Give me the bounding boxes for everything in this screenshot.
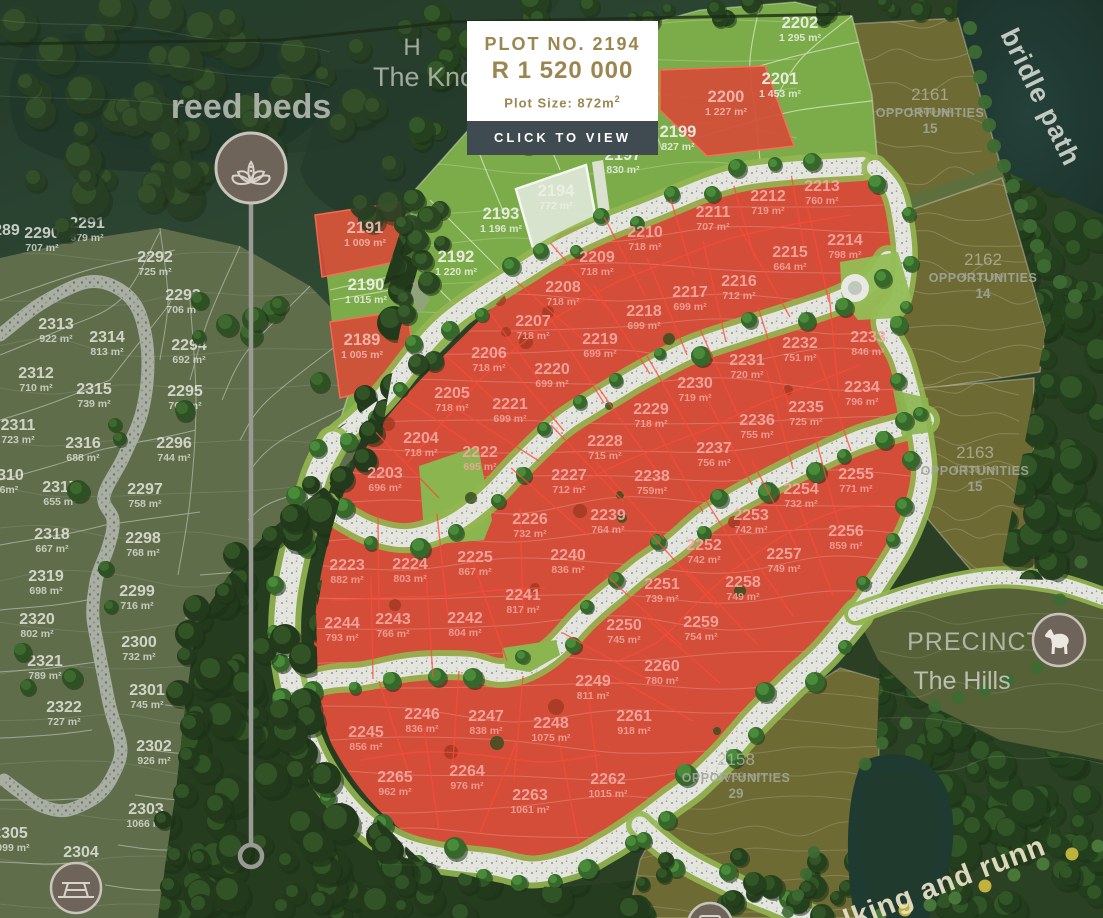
svg-text:2249: 2249 <box>575 673 611 690</box>
svg-text:718 m²: 718 m² <box>516 330 550 342</box>
svg-text:2206: 2206 <box>471 345 507 362</box>
svg-text:918 m²: 918 m² <box>617 725 651 737</box>
svg-text:2218: 2218 <box>626 303 662 320</box>
svg-text:749 m²: 749 m² <box>726 591 760 603</box>
svg-text:2224: 2224 <box>392 556 428 573</box>
svg-text:2210: 2210 <box>627 224 663 241</box>
svg-text:15: 15 <box>967 479 983 494</box>
svg-text:768 m²: 768 m² <box>126 547 160 559</box>
svg-text:2251: 2251 <box>644 576 680 593</box>
svg-text:804 m²: 804 m² <box>448 627 482 639</box>
svg-text:1099 m²: 1099 m² <box>0 842 30 854</box>
svg-text:2301: 2301 <box>129 682 165 699</box>
svg-text:2238: 2238 <box>634 468 670 485</box>
svg-text:2254: 2254 <box>783 481 819 498</box>
svg-text:2208: 2208 <box>545 279 581 296</box>
svg-text:2227: 2227 <box>551 467 587 484</box>
svg-text:751 m²: 751 m² <box>783 352 817 364</box>
svg-text:1 009 m²: 1 009 m² <box>344 237 387 249</box>
svg-text:725 m²: 725 m² <box>138 266 172 278</box>
svg-text:732 m²: 732 m² <box>784 498 818 510</box>
svg-text:926 m²: 926 m² <box>137 755 171 767</box>
svg-text:755 m²: 755 m² <box>740 429 774 441</box>
svg-text:742 m²: 742 m² <box>687 554 721 566</box>
svg-text:2257: 2257 <box>766 546 802 563</box>
svg-text:2242: 2242 <box>447 610 483 627</box>
svg-text:699 m²: 699 m² <box>583 348 617 360</box>
svg-text:reed beds: reed beds <box>171 88 332 126</box>
svg-text:2226: 2226 <box>512 511 548 528</box>
svg-text:2252: 2252 <box>686 537 722 554</box>
svg-text:1 015 m²: 1 015 m² <box>345 294 388 306</box>
svg-text:756 m²: 756 m² <box>697 457 731 469</box>
svg-text:2231: 2231 <box>729 352 765 369</box>
svg-text:922 m²: 922 m² <box>39 333 73 345</box>
svg-text:2312: 2312 <box>18 365 54 382</box>
svg-text:2158: 2158 <box>717 750 755 769</box>
svg-text:664 m²: 664 m² <box>773 261 807 273</box>
svg-text:2205: 2205 <box>434 385 470 402</box>
svg-text:2162: 2162 <box>964 250 1002 269</box>
svg-text:745 m²: 745 m² <box>130 699 164 711</box>
svg-text:796 m²: 796 m² <box>845 396 879 408</box>
svg-text:712 m²: 712 m² <box>552 484 586 496</box>
svg-text:789 m²: 789 m² <box>28 670 62 682</box>
svg-text:2295: 2295 <box>167 383 203 400</box>
svg-text:817 m²: 817 m² <box>506 604 540 616</box>
svg-text:2201: 2201 <box>762 70 799 88</box>
svg-text:766 m²: 766 m² <box>376 628 410 640</box>
svg-text:2246: 2246 <box>404 706 440 723</box>
svg-text:2194: 2194 <box>538 182 576 200</box>
svg-text:836 m²: 836 m² <box>551 564 585 576</box>
svg-text:2258: 2258 <box>725 574 761 591</box>
svg-text:2222: 2222 <box>462 444 498 461</box>
svg-text:2264: 2264 <box>449 763 485 780</box>
svg-text:2207: 2207 <box>515 313 551 330</box>
svg-text:719 m²: 719 m² <box>678 392 712 404</box>
svg-text:2250: 2250 <box>606 617 642 634</box>
svg-text:PRECINCT: PRECINCT <box>907 628 1043 656</box>
svg-text:2161: 2161 <box>911 85 949 104</box>
svg-text:718 m²: 718 m² <box>435 402 469 414</box>
svg-text:2223: 2223 <box>329 557 365 574</box>
svg-text:OPPORTUNITIES: OPPORTUNITIES <box>876 106 985 120</box>
svg-text:803 m²: 803 m² <box>393 573 427 585</box>
svg-text:696 m²: 696 m² <box>368 482 402 494</box>
svg-text:745 m²: 745 m² <box>607 634 641 646</box>
svg-text:718 m²: 718 m² <box>628 241 662 253</box>
svg-text:2233: 2233 <box>850 329 886 346</box>
svg-text:699 m²: 699 m² <box>535 378 569 390</box>
svg-text:2228: 2228 <box>587 433 623 450</box>
svg-text:718 m²: 718 m² <box>472 362 506 374</box>
svg-text:2191: 2191 <box>347 219 384 237</box>
svg-text:692 m²: 692 m² <box>172 354 206 366</box>
svg-text:2189: 2189 <box>344 331 381 349</box>
svg-text:793 m²: 793 m² <box>325 632 359 644</box>
svg-text:699 m²: 699 m² <box>493 413 527 425</box>
svg-text:707 m²: 707 m² <box>25 242 59 254</box>
svg-text:723 m²: 723 m² <box>1 434 35 446</box>
svg-text:2244: 2244 <box>324 615 360 632</box>
svg-text:2316: 2316 <box>65 435 101 452</box>
svg-text:699 m²: 699 m² <box>627 320 661 332</box>
svg-text:802 m²: 802 m² <box>20 628 54 640</box>
svg-text:2260: 2260 <box>644 658 680 675</box>
svg-text:1 227 m²: 1 227 m² <box>705 106 748 118</box>
svg-text:2235: 2235 <box>788 399 824 416</box>
svg-text:695 m²: 695 m² <box>463 461 497 473</box>
svg-text:2221: 2221 <box>492 396 528 413</box>
svg-text:2292: 2292 <box>137 249 173 266</box>
svg-text:1 295 m²: 1 295 m² <box>779 32 822 44</box>
svg-text:2256: 2256 <box>828 523 864 540</box>
svg-text:2319: 2319 <box>28 568 64 585</box>
svg-text:2259: 2259 <box>683 614 719 631</box>
svg-text:2220: 2220 <box>534 361 570 378</box>
svg-text:772 m²: 772 m² <box>539 200 573 212</box>
svg-text:2299: 2299 <box>119 583 155 600</box>
svg-text:2245: 2245 <box>348 724 384 741</box>
svg-text:2247: 2247 <box>468 708 504 725</box>
svg-text:OPPORTUNITIES: OPPORTUNITIES <box>921 464 1030 478</box>
svg-text:732 m²: 732 m² <box>513 528 547 540</box>
svg-text:2320: 2320 <box>19 611 55 628</box>
svg-text:739 m²: 739 m² <box>77 398 111 410</box>
svg-text:712 m²: 712 m² <box>722 290 756 302</box>
svg-text:2261: 2261 <box>616 708 652 725</box>
svg-text:2190: 2190 <box>348 276 385 294</box>
svg-text:2255: 2255 <box>838 466 874 483</box>
svg-text:2192: 2192 <box>438 248 475 266</box>
svg-text:758 m²: 758 m² <box>128 498 162 510</box>
svg-text:OPPORTUNITIES: OPPORTUNITIES <box>929 271 1038 285</box>
svg-text:2315: 2315 <box>76 381 112 398</box>
svg-text:2322: 2322 <box>46 699 82 716</box>
svg-text:2215: 2215 <box>772 244 808 261</box>
svg-text:2310: 2310 <box>0 467 24 484</box>
svg-text:667 m²: 667 m² <box>35 543 69 555</box>
svg-text:2214: 2214 <box>827 232 863 249</box>
svg-text:2265: 2265 <box>377 769 413 786</box>
svg-text:2199: 2199 <box>660 123 697 141</box>
svg-text:760 m²: 760 m² <box>805 195 839 207</box>
svg-text:2243: 2243 <box>375 611 411 628</box>
svg-text:732 m²: 732 m² <box>122 651 156 663</box>
svg-text:1 196 m²: 1 196 m² <box>480 223 523 235</box>
svg-text:2253: 2253 <box>733 507 769 524</box>
svg-text:727 m²: 727 m² <box>47 716 81 728</box>
svg-text:2230: 2230 <box>677 375 713 392</box>
svg-text:1015 m²: 1015 m² <box>588 788 628 800</box>
svg-text:2305: 2305 <box>0 825 28 842</box>
svg-text:2219: 2219 <box>582 331 618 348</box>
svg-text:811 m²: 811 m² <box>577 690 610 702</box>
svg-text:716 m²: 716 m² <box>120 600 154 612</box>
svg-text:718 m²: 718 m² <box>580 266 614 278</box>
svg-text:2203: 2203 <box>367 465 403 482</box>
svg-text:The Hills: The Hills <box>913 667 1010 695</box>
svg-text:2236: 2236 <box>739 412 775 429</box>
svg-text:2302: 2302 <box>136 738 172 755</box>
svg-text:2163: 2163 <box>956 443 994 462</box>
svg-text:2211: 2211 <box>696 204 731 221</box>
svg-text:718 m²: 718 m² <box>634 418 668 430</box>
svg-text:720 m²: 720 m² <box>730 369 764 381</box>
svg-text:780 m²: 780 m² <box>645 675 679 687</box>
svg-text:2204: 2204 <box>403 430 439 447</box>
svg-text:2318: 2318 <box>34 526 70 543</box>
svg-text:2216: 2216 <box>721 273 757 290</box>
svg-text:2229: 2229 <box>633 401 669 418</box>
svg-text:859 m²: 859 m² <box>829 540 863 552</box>
svg-text:86m²: 86m² <box>0 484 19 496</box>
svg-text:2234: 2234 <box>844 379 880 396</box>
svg-text:1061 m²: 1061 m² <box>510 804 550 816</box>
svg-text:2239: 2239 <box>590 507 626 524</box>
svg-text:2209: 2209 <box>579 249 615 266</box>
svg-text:771 m²: 771 m² <box>839 483 873 495</box>
svg-text:15: 15 <box>922 121 938 136</box>
svg-text:688 m²: 688 m² <box>66 452 100 464</box>
svg-text:29: 29 <box>728 786 743 801</box>
svg-text:2298: 2298 <box>125 530 161 547</box>
svg-text:2300: 2300 <box>121 634 157 651</box>
svg-text:838 m²: 838 m² <box>469 725 503 737</box>
svg-text:699 m²: 699 m² <box>673 301 707 313</box>
svg-text:2232: 2232 <box>782 335 818 352</box>
svg-text:14: 14 <box>975 286 991 301</box>
svg-text:725 m²: 725 m² <box>789 416 823 428</box>
svg-text:749 m²: 749 m² <box>767 563 801 575</box>
svg-text:2225: 2225 <box>457 549 493 566</box>
svg-text:764 m²: 764 m² <box>591 524 625 536</box>
svg-text:715 m²: 715 m² <box>588 450 622 462</box>
svg-text:759m²: 759m² <box>637 485 668 497</box>
svg-text:798 m²: 798 m² <box>828 249 862 261</box>
svg-text:2193: 2193 <box>483 205 520 223</box>
svg-text:867 m²: 867 m² <box>458 566 492 578</box>
svg-text:2304: 2304 <box>63 844 99 861</box>
svg-text:813 m²: 813 m² <box>90 346 124 358</box>
svg-text:856 m²: 856 m² <box>349 741 383 753</box>
svg-text:2263: 2263 <box>512 787 548 804</box>
svg-text:882 m²: 882 m² <box>330 574 364 586</box>
svg-text:2237: 2237 <box>696 440 732 457</box>
svg-text:827 m²: 827 m² <box>661 141 695 153</box>
svg-text:H: H <box>403 34 420 61</box>
svg-text:719 m²: 719 m² <box>751 205 785 217</box>
svg-text:976 m²: 976 m² <box>450 780 484 792</box>
svg-text:710 m²: 710 m² <box>19 382 53 394</box>
svg-text:718 m²: 718 m² <box>404 447 438 459</box>
svg-text:2313: 2313 <box>38 316 74 333</box>
svg-text:1075 m²: 1075 m² <box>531 732 571 744</box>
svg-text:739 m²: 739 m² <box>645 593 679 605</box>
svg-text:2297: 2297 <box>127 481 163 498</box>
svg-text:2296: 2296 <box>156 435 192 452</box>
svg-text:1 220 m²: 1 220 m² <box>435 266 478 278</box>
svg-text:846 m²: 846 m² <box>851 346 885 358</box>
svg-text:2240: 2240 <box>550 547 586 564</box>
svg-text:718 m²: 718 m² <box>546 296 580 308</box>
svg-text:2241: 2241 <box>505 587 541 604</box>
svg-text:2262: 2262 <box>590 771 626 788</box>
svg-text:830 m²: 830 m² <box>606 164 640 176</box>
svg-text:1 453 m²: 1 453 m² <box>759 88 802 100</box>
svg-text:2314: 2314 <box>89 329 125 346</box>
svg-text:698 m²: 698 m² <box>29 585 63 597</box>
svg-text:2311: 2311 <box>1 417 36 434</box>
svg-text:962 m²: 962 m² <box>378 786 412 798</box>
svg-text:2217: 2217 <box>672 284 708 301</box>
svg-text:2212: 2212 <box>750 188 786 205</box>
svg-text:742 m²: 742 m² <box>734 524 768 536</box>
svg-text:2248: 2248 <box>533 715 569 732</box>
svg-text:707 m²: 707 m² <box>696 221 730 233</box>
svg-text:2200: 2200 <box>708 88 745 106</box>
svg-text:1 005 m²: 1 005 m² <box>341 349 384 361</box>
svg-text:836 m²: 836 m² <box>405 723 439 735</box>
svg-text:744 m²: 744 m² <box>157 452 191 464</box>
svg-text:2213: 2213 <box>804 178 840 195</box>
svg-text:754 m²: 754 m² <box>684 631 718 643</box>
svg-text:2289: 2289 <box>0 222 20 239</box>
svg-text:OPPORTUNITIES: OPPORTUNITIES <box>682 771 791 785</box>
